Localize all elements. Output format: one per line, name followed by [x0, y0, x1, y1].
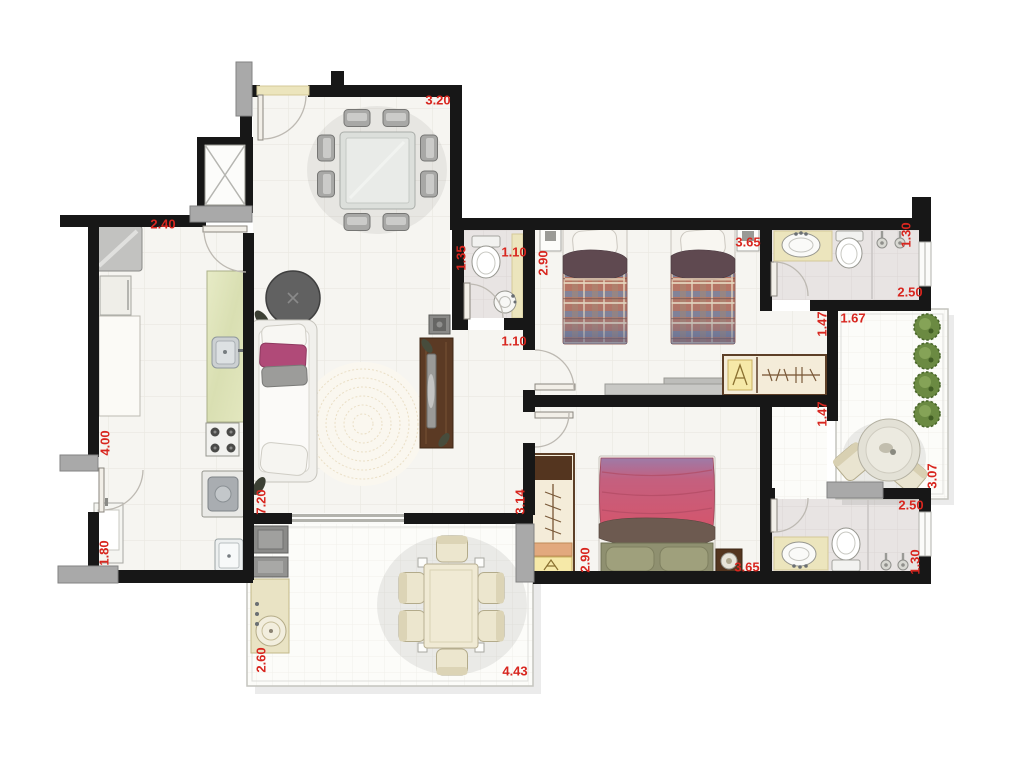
plant	[914, 343, 940, 369]
bed-fold	[599, 518, 715, 546]
dining-chair	[344, 214, 370, 231]
window	[919, 512, 931, 556]
entry-threshold	[257, 86, 309, 95]
plant	[914, 372, 940, 398]
floor-plan-canvas: 3.202.404.001.807.202.604.433.141.351.10…	[0, 0, 1024, 768]
sofa-pillow-white	[260, 442, 309, 477]
sofa-pillow-gray	[262, 365, 308, 387]
plant	[914, 401, 940, 427]
dining-chair	[383, 110, 409, 127]
round-rug	[301, 362, 425, 486]
toilet	[832, 528, 860, 571]
dining-chair	[421, 135, 438, 161]
window	[919, 242, 931, 286]
dining-chair	[318, 171, 335, 197]
kitchen-cabinet	[100, 276, 131, 315]
floor-hall	[450, 330, 535, 513]
wardrobe-master	[532, 454, 574, 575]
dining-set	[307, 106, 447, 234]
twin-bed-2	[669, 219, 737, 344]
bed-pillow	[606, 547, 654, 571]
washing-machine	[202, 471, 244, 517]
double-bed	[599, 456, 715, 575]
round-sink	[494, 291, 517, 313]
wardrobe-shelf	[534, 557, 572, 573]
floor-terrace-link	[772, 407, 827, 499]
kitchen-counter-left	[99, 316, 140, 416]
balcony-chair	[478, 611, 504, 642]
elevator	[197, 137, 253, 213]
balcony-chair	[399, 611, 425, 642]
toilet	[836, 231, 863, 268]
master-bedroom	[532, 454, 742, 575]
nightstand-drawer	[545, 231, 556, 241]
wardrobe-bedroom-1	[723, 355, 826, 395]
dining-chair	[344, 110, 370, 127]
grill-counter	[251, 526, 289, 653]
wardrobe-drawer	[534, 543, 572, 556]
balcony-chair	[478, 573, 504, 604]
service-sink	[215, 539, 243, 572]
gourmet-table-set	[377, 535, 527, 675]
terrace-table	[858, 419, 920, 481]
balcony-chair	[437, 649, 468, 675]
sofa	[249, 320, 317, 497]
wardrobe-top-shelf	[534, 456, 572, 480]
dining-chair	[318, 135, 335, 161]
dining-chair	[421, 171, 438, 197]
balcony-slider	[292, 513, 404, 524]
tank-faucet	[105, 498, 108, 506]
balcony-chair	[437, 536, 468, 562]
floor-plan-drawing	[0, 0, 1024, 768]
dining-chair	[383, 214, 409, 231]
bed-pillow	[660, 547, 708, 571]
plant	[914, 314, 940, 340]
balcony-chair	[399, 573, 425, 604]
nightstand-master	[716, 549, 742, 574]
bed-blanket	[600, 458, 715, 528]
stove	[206, 423, 239, 456]
toilet	[472, 236, 500, 278]
twin-bed-1	[561, 219, 629, 344]
nightstand-drawer	[742, 231, 754, 241]
balcony-table	[424, 564, 478, 648]
